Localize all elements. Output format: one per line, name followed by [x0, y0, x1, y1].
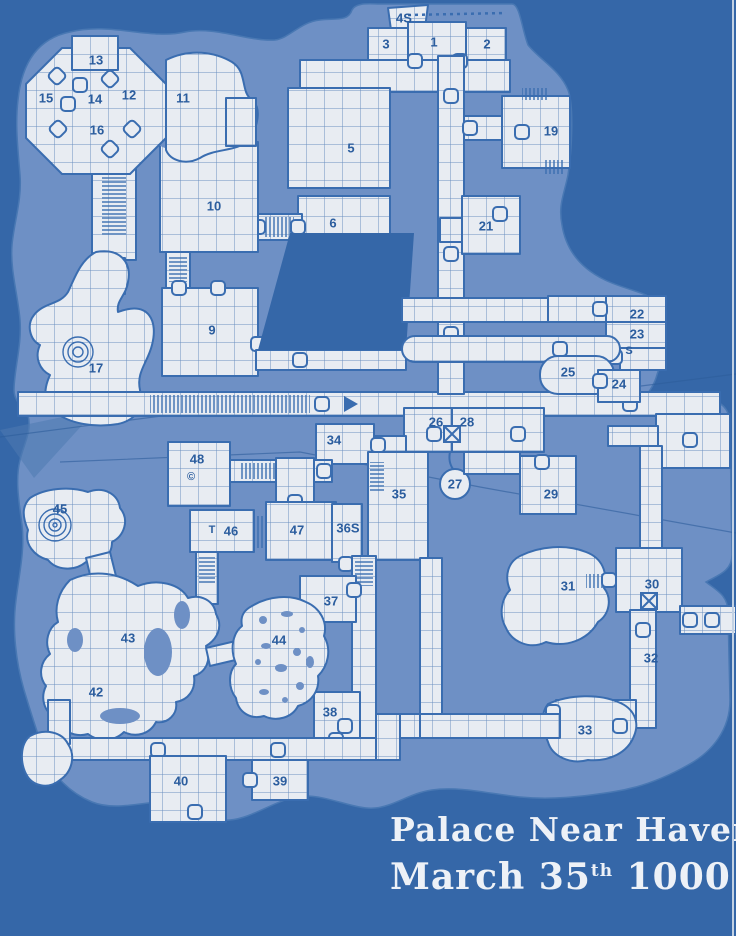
room-label-16: 16	[90, 123, 104, 138]
map-annotation-©: ©	[187, 471, 195, 483]
rooms-layer	[18, 5, 736, 822]
room-label-19: 19	[544, 124, 558, 139]
room-label-26: 26	[429, 415, 443, 430]
room-label-5: 5	[347, 141, 354, 156]
cave-sw	[22, 732, 72, 786]
scan-edge-line	[732, 0, 734, 936]
room-label-44: 44	[272, 633, 287, 648]
room-19	[502, 96, 570, 168]
ordinal-suffix: th	[591, 861, 613, 881]
corridor-right-L	[640, 446, 662, 550]
room-label-35: 35	[392, 487, 406, 502]
room-5	[288, 88, 390, 188]
room-label-43: 43	[121, 631, 135, 646]
corridor-B	[420, 558, 442, 736]
room-label-25: 25	[561, 365, 575, 380]
room-label-37: 37	[324, 594, 338, 609]
room-label-28: 28	[460, 415, 474, 430]
room-label-21: 21	[479, 219, 493, 234]
room-label-10: 10	[207, 199, 221, 214]
room-label-45: 45	[53, 502, 67, 517]
room-label-27: 27	[448, 477, 462, 492]
room-label-30: 30	[645, 577, 659, 592]
room-label-33: 33	[578, 723, 592, 738]
cave-31	[502, 547, 609, 645]
room-46	[190, 510, 254, 552]
room-label-39: 39	[273, 774, 287, 789]
room-label-31: 31	[561, 579, 575, 594]
room-label-46: 46	[224, 524, 238, 539]
room-label-38: 38	[323, 705, 337, 720]
map-annotation-T: T	[209, 524, 216, 536]
dungeon-map: 1234S56910111213141516171921222324252627…	[0, 0, 736, 936]
blueprint-map-page: 1234S56910111213141516171921222324252627…	[0, 0, 736, 936]
room-label-13: 13	[89, 53, 103, 68]
room-label-40: 40	[174, 774, 188, 789]
room-label-17: 17	[89, 361, 103, 376]
room-label-24: 24	[612, 377, 627, 392]
room-label-1: 1	[430, 35, 437, 50]
room-label-6: 6	[329, 216, 336, 231]
map-annotation-S: S	[625, 345, 632, 357]
corridor-under-hole	[256, 350, 406, 370]
room-label-32: 32	[644, 651, 658, 666]
room-label-29: 29	[544, 487, 558, 502]
room-label-14: 14	[88, 92, 103, 107]
room-label-22: 22	[630, 307, 644, 322]
room-label-34: 34	[327, 433, 342, 448]
corridor-bottom-right	[420, 714, 560, 738]
room-34	[316, 424, 374, 464]
room-label-9: 9	[208, 323, 215, 338]
room-label-42: 42	[89, 685, 103, 700]
room-label-48: 48	[190, 452, 204, 467]
room-label-11: 11	[176, 91, 190, 106]
room-label-47: 47	[290, 523, 304, 538]
room-label-3: 3	[382, 37, 389, 52]
room-label-15: 15	[39, 91, 53, 106]
room-label-4S: 4S	[396, 11, 412, 26]
map-title-line1: Palace Near Haven	[390, 808, 730, 853]
room-label-12: 12	[122, 88, 136, 103]
map-title-line2: March 35th 1000 AC	[390, 853, 730, 902]
corridor-to-22	[402, 298, 548, 322]
room-label-2: 2	[483, 37, 490, 52]
map-title: Palace Near Haven March 35th 1000 AC	[390, 808, 730, 901]
room-label-36S: 36S	[336, 521, 359, 536]
room-label-23: 23	[630, 327, 644, 342]
